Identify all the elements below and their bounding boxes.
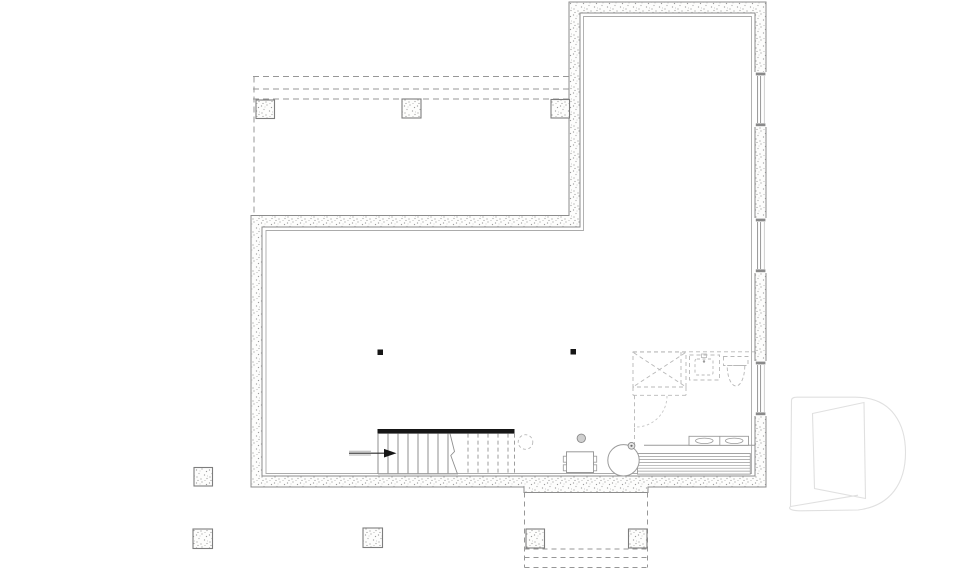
bath-door-swing-arc [636, 396, 667, 427]
stair-header-beam [378, 429, 515, 434]
toilet-bowl [727, 366, 745, 387]
rear-deck-pier-right [629, 529, 648, 548]
deck-pier-1 [256, 100, 275, 119]
toilet-tank [724, 357, 749, 366]
furnace-tab-left-2 [563, 465, 566, 471]
drawing-sheet [0, 0, 960, 569]
footing-pier-1 [194, 468, 213, 487]
deck-pier-3 [551, 100, 570, 119]
sink-faucet [702, 354, 707, 358]
water-tank [608, 445, 639, 476]
floorplan [0, 0, 960, 569]
logo-door [813, 403, 866, 499]
window-cap-bottom-1 [756, 123, 766, 126]
stair-break-line [450, 434, 458, 474]
footing-pier-3 [363, 528, 383, 548]
steel-post-1 [378, 350, 384, 356]
stair-arrow-head [384, 449, 397, 458]
sink-drain-dot [703, 360, 705, 362]
wall-furring-line [266, 17, 752, 474]
foundation-wall [251, 2, 766, 493]
deck-pier-2 [402, 99, 421, 118]
logo-swoosh [791, 495, 859, 506]
window-cap-bottom-3 [756, 412, 766, 415]
window-cap-top-3 [756, 362, 766, 365]
furnace-unit [567, 452, 594, 473]
window-cap-top-2 [756, 219, 766, 222]
rear-deck-pier-left [526, 529, 545, 548]
stair-newel-post-dashed [518, 435, 533, 450]
footing-pier-2 [193, 529, 213, 549]
steel-post-2 [571, 349, 577, 355]
logo-outer-d [790, 397, 906, 511]
furnace-tab-right-1 [594, 456, 597, 462]
floor-drain [577, 434, 585, 442]
window-cap-bottom-2 [756, 269, 766, 272]
laundry-sinks-outline [689, 436, 749, 445]
drain-rough-in-dot [630, 445, 632, 447]
furnace-tab-left-1 [563, 456, 566, 462]
window-cap-top-1 [756, 73, 766, 76]
furnace-tab-right-2 [594, 465, 597, 471]
